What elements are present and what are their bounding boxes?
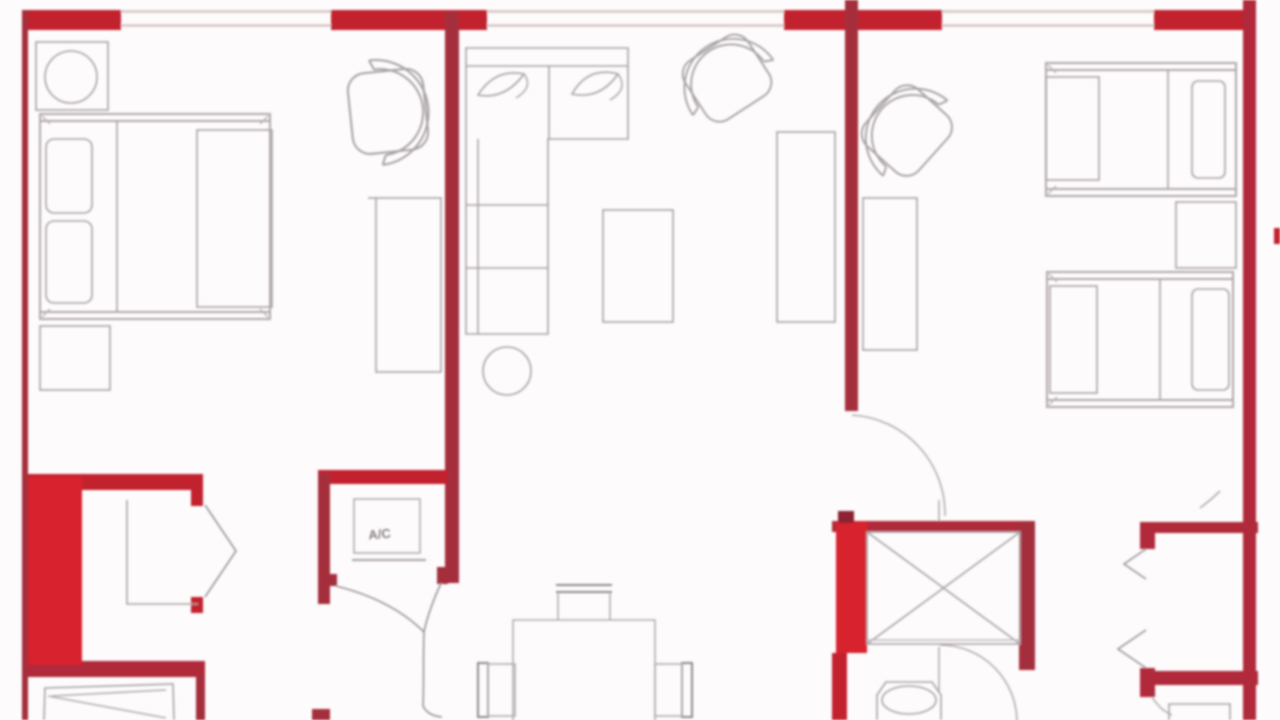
svg-text:A/C: A/C	[368, 525, 392, 542]
